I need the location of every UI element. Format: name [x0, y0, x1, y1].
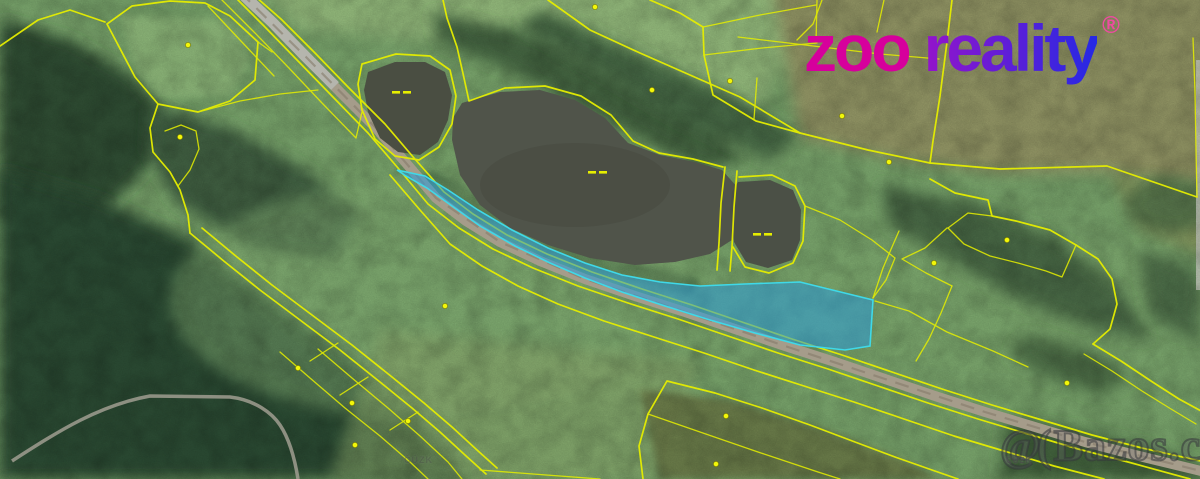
logo-word-reality: reality	[924, 11, 1097, 85]
cuzk-source-label: ČÚZK	[1006, 456, 1032, 465]
cuzk-source-label-center: ČÚZK	[404, 455, 433, 465]
logo-word-zoo: zoo	[804, 11, 909, 85]
listing-photo: zooreality® @(Bazos.cz ČÚZK ČÚZK	[0, 0, 1200, 479]
bazos-watermark-text: Bazos.cz	[1054, 421, 1200, 470]
registered-trademark-icon: ®	[1102, 12, 1120, 39]
zoo-reality-logo: zooreality®	[804, 14, 1120, 81]
